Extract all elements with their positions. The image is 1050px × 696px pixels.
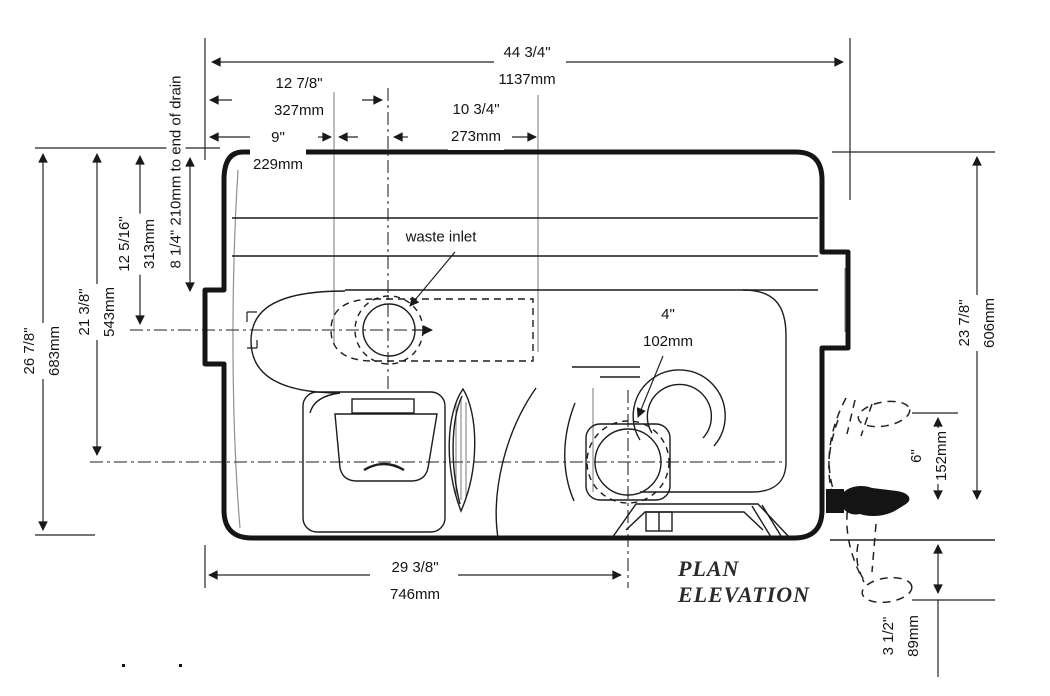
dim-end-to-body-mm: 229mm [253,151,303,178]
tank-interior-details [232,218,818,538]
dim-body-width-in: 23 7/8" [952,298,977,348]
dim-body-width-mm: 606mm [977,298,1002,348]
dim-body-width-label: 23 7/8" 606mm [952,295,1002,351]
dim-inlet-from-end-mm: 327mm [274,97,324,124]
dim-drain-diameter-mm: 102mm [643,328,693,355]
dim-inlet-from-end-in: 12 7/8" [274,70,324,97]
spout-down-position [861,575,914,606]
dim-end-to-body-in: 9" [253,124,303,151]
drain-diameter-leader [638,356,663,417]
stray-mark [179,664,182,667]
plan-label: PLAN [678,556,810,582]
dim-width-to-inlet-mm: 313mm [137,216,162,271]
spout-up-position [856,398,911,431]
dim-drain-diameter-in: 4" [643,301,693,328]
dim-spout-clearance-mm: 152mm [929,431,954,481]
dim-spout-drop-mm: 89mm [901,615,926,657]
dim-spout-drop-label: 3 1/2" 89mm [876,612,926,660]
dim-inlet-to-drain-label: 10 3/4" 273mm [448,96,504,150]
handle-recess [612,504,790,538]
dim-inlet-to-drain-in: 10 3/4" [451,96,501,123]
dim-overall-length-mm: 1137mm [498,66,555,93]
dim-inlet-from-end-label: 12 7/8" 327mm [271,70,327,124]
dim-drain-length-label: 29 3/8" 746mm [387,554,443,608]
dim-spout-drop-in: 3 1/2" [876,615,901,657]
dim-width-to-centerline-label: 21 3/8" 543mm [72,284,122,340]
tank-plan-elevation-drawing [0,0,1050,696]
drain-note-label: 8 1/4" 210mm to end of drain [167,73,186,272]
dim-overall-length-in: 44 3/4" [498,39,555,66]
waste-inlet-label: waste inlet [403,228,480,247]
dim-spout-clearance-label: 6" 152mm [904,428,954,484]
dim-width-to-inlet-in: 12 5/16" [112,216,137,271]
drawing-canvas: 44 3/4" 1137mm 12 7/8" 327mm 10 3/4" 273… [0,0,1050,696]
elevation-label: ELEVATION [678,582,810,608]
dim-inlet-to-drain-mm: 273mm [451,123,501,150]
view-title: PLAN ELEVATION [678,556,810,608]
dim-width-to-centerline-in: 21 3/8" [72,287,97,337]
dim-drain-diameter-label: 4" 102mm [640,301,696,355]
dim-drain-length-in: 29 3/8" [390,554,440,581]
dim-overall-width-mm: 683mm [42,326,67,376]
sump-basin [335,414,437,481]
waste-inlet-leader [410,252,455,306]
dim-end-to-body-label: 9" 229mm [250,124,306,178]
tank-outline [205,152,848,538]
dim-width-to-inlet-label: 12 5/16" 313mm [112,213,162,274]
dim-overall-length-label: 44 3/4" 1137mm [495,39,558,93]
stray-mark [122,664,125,667]
dim-overall-width-in: 26 7/8" [17,326,42,376]
dim-width-to-centerline-mm: 543mm [97,287,122,337]
dim-overall-width-label: 26 7/8" 683mm [17,323,67,379]
dim-drain-length-mm: 746mm [390,581,440,608]
dim-spout-clearance-in: 6" [904,431,929,481]
